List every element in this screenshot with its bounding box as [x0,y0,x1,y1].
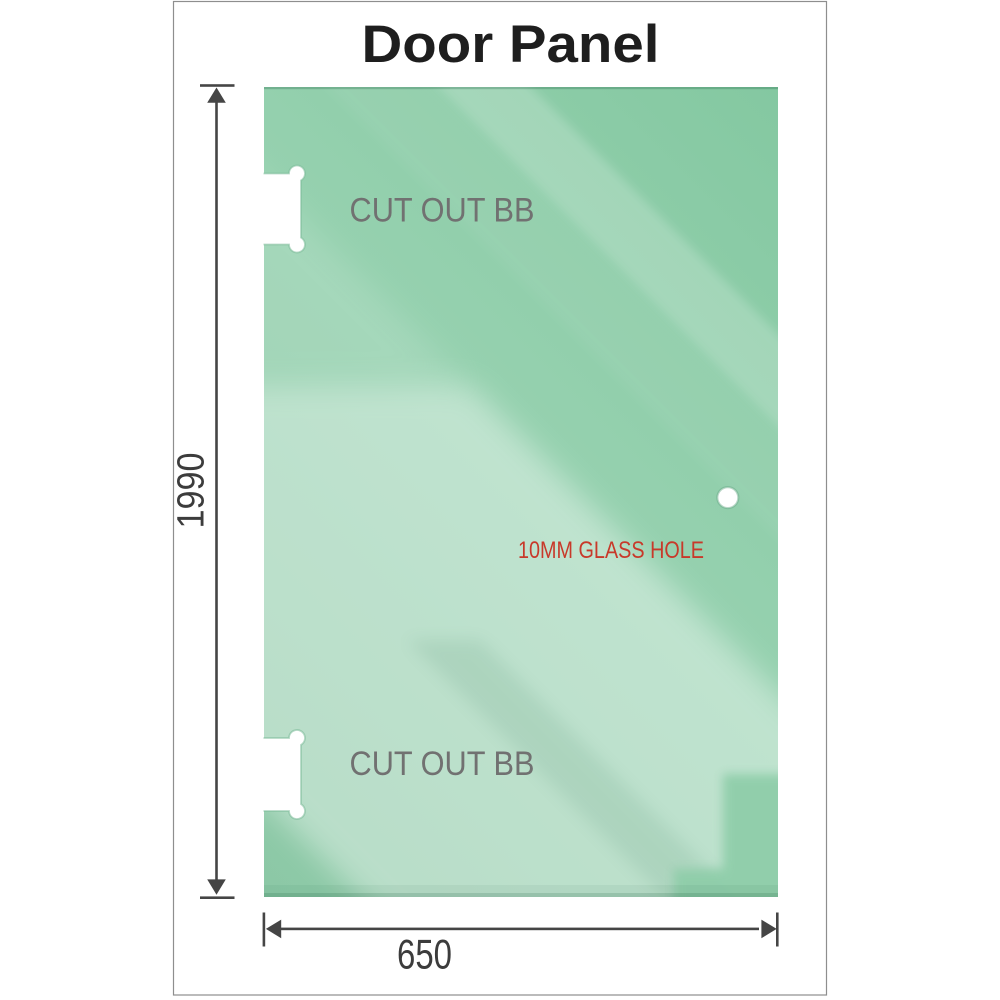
svg-text:CUT OUT BB: CUT OUT BB [350,192,535,230]
svg-text:1990: 1990 [171,453,213,529]
svg-text:10MM GLASS HOLE: 10MM GLASS HOLE [518,537,704,564]
svg-text:650: 650 [397,931,452,978]
svg-text:Door Panel: Door Panel [362,15,660,74]
svg-text:CUT OUT BB: CUT OUT BB [350,745,535,783]
